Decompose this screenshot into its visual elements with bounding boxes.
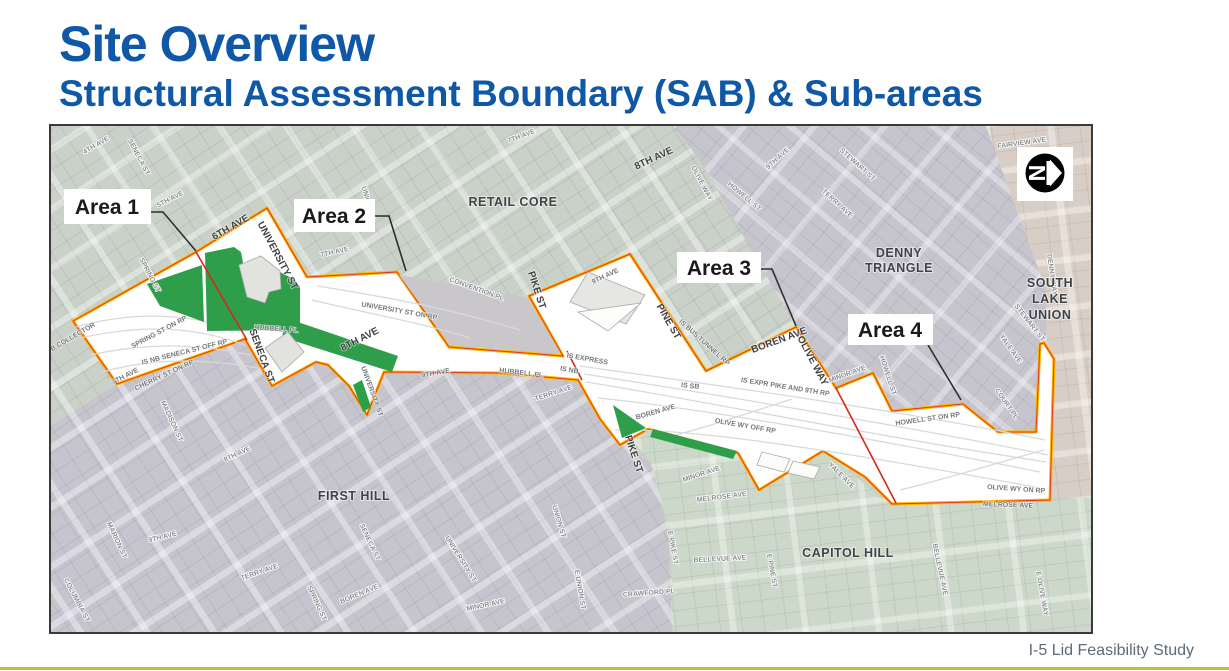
svg-text:TRIANGLE: TRIANGLE — [865, 261, 933, 275]
svg-text:N: N — [1024, 165, 1050, 182]
svg-text:Area 3: Area 3 — [687, 257, 751, 280]
svg-text:CAPITOL HILL: CAPITOL HILL — [802, 546, 894, 560]
svg-text:Area 4: Area 4 — [858, 319, 923, 342]
svg-text:DENNY: DENNY — [876, 246, 922, 260]
svg-text:RETAIL CORE: RETAIL CORE — [468, 195, 557, 209]
svg-text:SOUTH: SOUTH — [1027, 276, 1073, 290]
svg-text:LAKE: LAKE — [1032, 292, 1068, 306]
svg-text:Area 2: Area 2 — [302, 205, 366, 228]
svg-text:UNION: UNION — [1029, 308, 1072, 322]
svg-text:Area 1: Area 1 — [75, 196, 140, 219]
svg-text:FIRST HILL: FIRST HILL — [318, 489, 390, 503]
